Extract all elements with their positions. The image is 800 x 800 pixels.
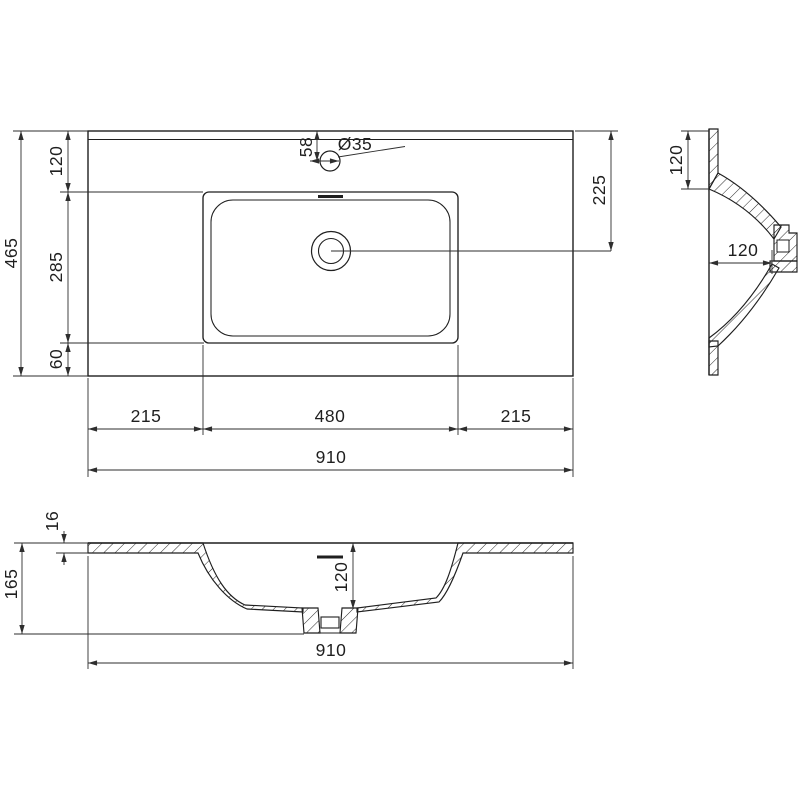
drain-block-left (302, 608, 320, 633)
washbasin-drawing-canvas: 465 120 285 60 58 Ø35 225 215 480 215 91… (0, 0, 800, 800)
dim-label-910-top: 910 (316, 447, 347, 467)
basin-inner-outline (211, 200, 450, 336)
drain-boss-recess (777, 240, 789, 252)
front-deck-section (709, 341, 718, 375)
basin-outer-outline (203, 192, 458, 343)
dim-label-215-right: 215 (501, 406, 532, 426)
dim-label-225: 225 (589, 175, 609, 206)
dim-label-215-left: 215 (131, 406, 162, 426)
technical-drawing-page: 465 120 285 60 58 Ø35 225 215 480 215 91… (0, 0, 800, 800)
dim-label-120-side-top: 120 (666, 145, 686, 176)
basin-back-wall-section (709, 173, 781, 239)
left-deck-and-wall-section (88, 543, 303, 612)
dim-label-58: 58 (296, 137, 316, 157)
dim-label-465: 465 (1, 238, 21, 269)
dim-label-16: 16 (42, 511, 62, 531)
dim-label-285: 285 (46, 252, 66, 283)
dim-label-480: 480 (315, 406, 346, 426)
front-section-view: 16 165 120 910 (1, 511, 573, 669)
right-deck-and-wall-section (357, 543, 573, 612)
basin-front-wall-section (709, 264, 779, 347)
drain-block-right (340, 608, 358, 633)
side-section-view: 120 120 (666, 129, 797, 375)
drain-waste-outline (321, 617, 339, 628)
dim-label-120-back: 120 (46, 146, 66, 177)
dim-label-diameter-35: Ø35 (338, 134, 373, 154)
dim-label-60: 60 (46, 349, 66, 369)
dim-label-120-side-mid: 120 (728, 240, 759, 260)
countertop-outline (88, 131, 573, 376)
dim-label-120-front: 120 (331, 562, 351, 593)
top-view: 465 120 285 60 58 Ø35 225 215 480 215 91… (1, 131, 618, 477)
dim-label-910-front: 910 (316, 640, 347, 660)
dim-label-165: 165 (1, 569, 21, 600)
